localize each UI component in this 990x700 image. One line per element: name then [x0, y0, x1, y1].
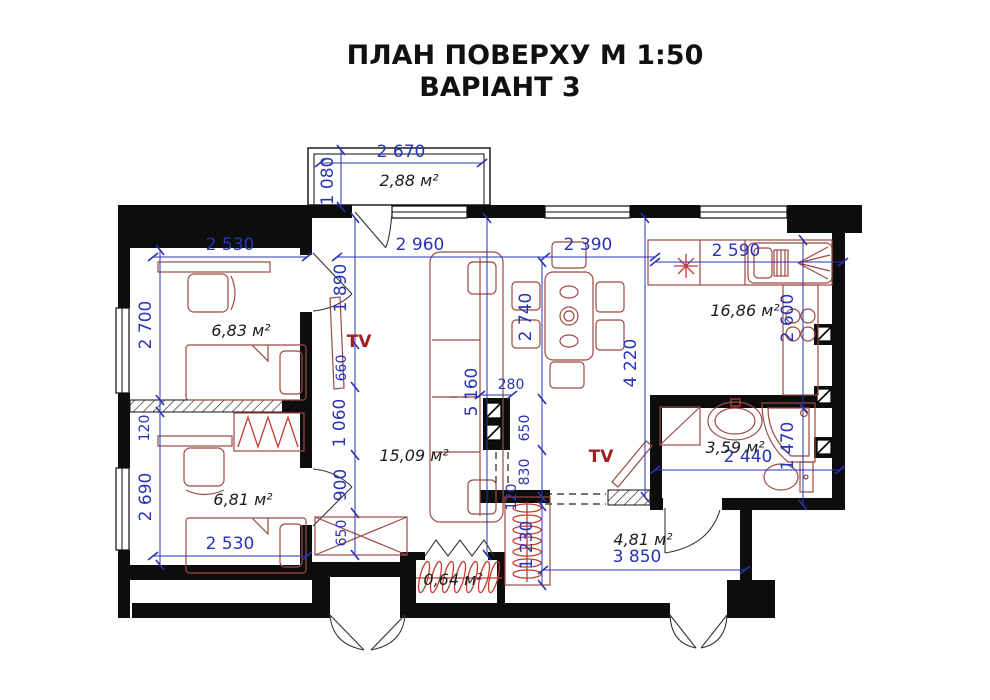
dim-chain-660: 660 — [334, 355, 350, 382]
dim-bathroom-height: 1 470 — [778, 422, 798, 471]
chair-icon — [188, 274, 235, 312]
dim-chain-1890: 1 890 — [331, 264, 351, 313]
dim-balcony-depth: 1 080 — [318, 157, 338, 206]
washing-machine-icon — [660, 407, 700, 445]
door-entrance-double — [670, 615, 727, 648]
tv-panel-icon — [612, 441, 652, 487]
dim-chain-900: 900 — [331, 469, 351, 501]
area-balcony: 2,88 м² — [379, 171, 439, 190]
dim-dining-width: 2 390 — [564, 235, 613, 255]
dim-kitchen-height: 2 600 — [778, 294, 798, 343]
dim-bedroom-bottom-height: 2 690 — [136, 473, 156, 522]
dim-chain-1060: 1 060 — [330, 399, 350, 448]
area-kitchen: 16,86 м² — [710, 301, 780, 320]
window-bedroom-top — [116, 308, 129, 393]
floor-plan-page: ПЛАН ПОВЕРХУ М 1:50 ВАРІАНТ 3 — [0, 0, 990, 700]
dim-living-height: 5 160 — [462, 368, 482, 417]
dim-bedroom-top-height: 2 700 — [136, 301, 156, 350]
window-dining — [545, 206, 630, 218]
dim-dining-height: 2 740 — [516, 293, 536, 342]
plan-variant: ВАРІАНТ 3 — [419, 72, 580, 103]
area-bedroom-bottom: 6,81 м² — [213, 490, 273, 509]
floor-plan-drawing: ПЛАН ПОВЕРХУ М 1:50 ВАРІАНТ 3 — [0, 0, 990, 700]
area-bedroom-top: 6,83 м² — [211, 321, 271, 340]
dim-living-width: 2 960 — [396, 235, 445, 255]
door-balcony — [355, 212, 392, 248]
plan-title: ПЛАН ПОВЕРХУ М 1:50 — [347, 40, 704, 71]
desk-icon — [158, 436, 232, 446]
dining-table-icon — [545, 272, 593, 360]
cabinet-icon — [315, 517, 407, 555]
sink-icon — [748, 243, 832, 283]
door-bathroom — [665, 508, 720, 553]
window-bedroom-bottom — [116, 468, 129, 550]
tv-label-hall: TV — [589, 447, 615, 467]
door-terrace-double — [330, 615, 405, 650]
area-living: 15,09 м² — [379, 446, 449, 465]
dim-hall-width: 3 850 — [613, 547, 662, 567]
stove-icon — [674, 254, 698, 278]
area-closet: 0,64 м² — [423, 570, 483, 589]
window-balcony — [392, 206, 467, 218]
area-hall: 4,81 м² — [613, 530, 673, 549]
desk-icon — [158, 262, 270, 272]
dim-vent-width: 280 — [498, 377, 525, 393]
dim-gap-830: 830 — [517, 459, 533, 486]
dim-balcony-width: 2 670 — [377, 142, 426, 162]
dim-vent-height: 650 — [517, 415, 533, 442]
dim-bedroom-top-width: 2 530 — [206, 235, 255, 255]
dim-bedroom-bottom-width: 2 530 — [206, 534, 255, 554]
folding-door-closet — [425, 540, 494, 556]
tv-label-living: TV — [347, 332, 373, 352]
dim-gap-120: 120 — [504, 484, 520, 511]
dim-partition: 120 — [137, 415, 153, 442]
dim-wardrobe-height: 1 230 — [517, 521, 537, 570]
window-kitchen — [700, 206, 787, 218]
wardrobe-icon — [234, 413, 304, 451]
area-bathroom: 3,59 м² — [705, 438, 765, 457]
dim-chain-650: 650 — [334, 520, 350, 547]
bed-icon — [186, 345, 306, 400]
dim-dining-total: 4 220 — [621, 339, 641, 388]
chair-icon — [184, 448, 224, 495]
dim-kitchen-width: 2 590 — [712, 241, 761, 261]
